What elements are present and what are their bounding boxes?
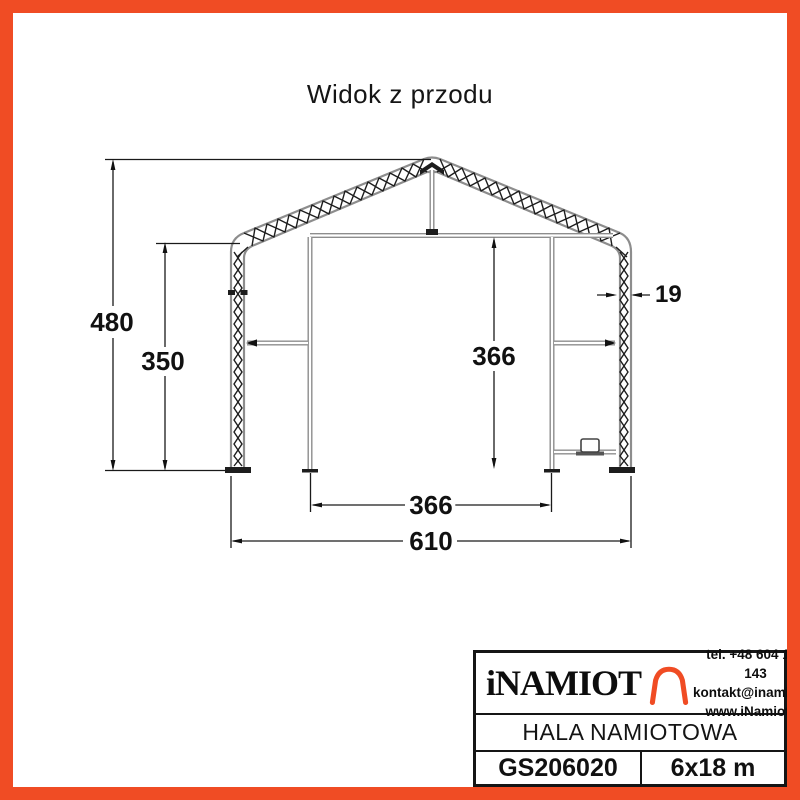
model-code: GS206020 (476, 752, 642, 784)
left-post-foot (302, 469, 318, 473)
brand-logo: iNAMIOT (476, 658, 693, 708)
right-base-plate (609, 467, 635, 473)
tent-logo-icon (645, 660, 693, 708)
junction-box (576, 439, 604, 456)
dimension-total-height-480 (105, 159, 431, 471)
dim-label-side-height: 350 (138, 348, 187, 374)
dim-label-truss-thickness: 19 (652, 283, 685, 307)
contact-info: tel. +48 604 108 143 kontakt@inamiot.pl … (693, 645, 800, 721)
title-block: iNAMIOT tel. +48 604 108 143 kontakt@ina… (473, 650, 787, 787)
brand-logo-text: iNAMIOT (486, 665, 641, 701)
title-block-header-row: iNAMIOT tel. +48 604 108 143 kontakt@ina… (476, 653, 784, 715)
product-size: 6x18 m (642, 752, 784, 784)
dim-label-total-width: 610 (406, 528, 455, 554)
dim-label-total-height: 480 (87, 309, 136, 335)
left-base-plate (225, 467, 251, 473)
right-post-foot (544, 469, 560, 473)
dim-label-inner-width: 366 (406, 492, 455, 518)
dim-label-inner-height: 366 (469, 343, 518, 369)
contact-phone: tel. +48 604 108 143 (693, 645, 800, 683)
drawing-title: Widok z przodu (0, 79, 800, 110)
right-mid-rail (554, 339, 616, 346)
left-mid-rail (246, 339, 308, 346)
title-block-bottom-row: GS206020 6x18 m (476, 752, 784, 784)
contact-email: kontakt@inamiot.pl (693, 683, 800, 702)
product-name: HALA NAMIOTOWA (476, 715, 784, 752)
